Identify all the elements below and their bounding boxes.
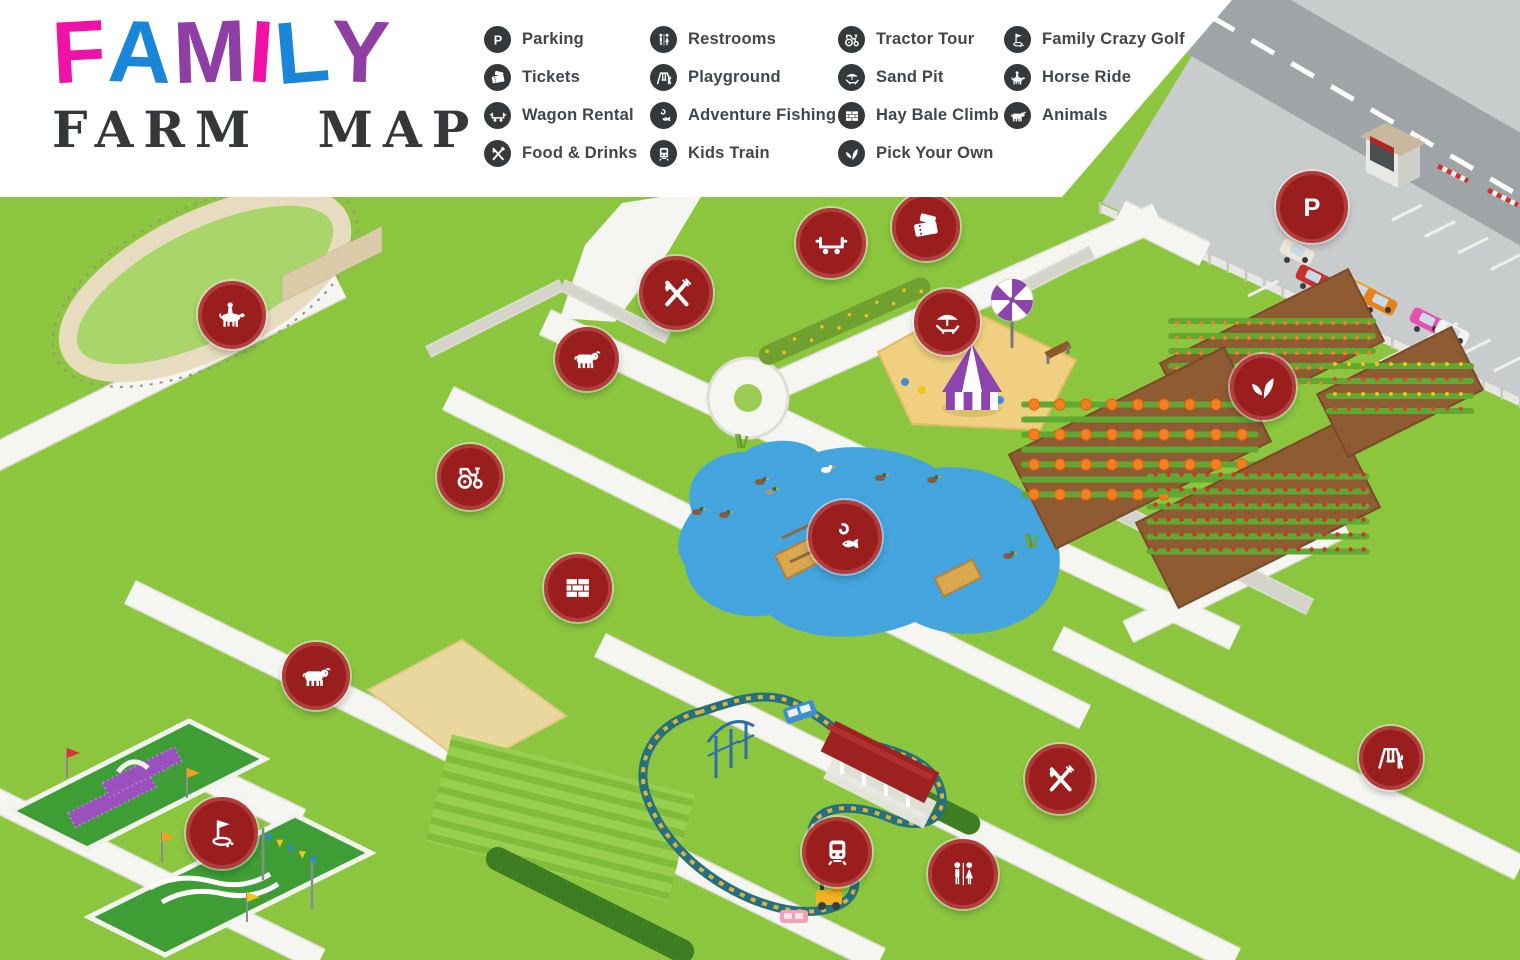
map-marker-adventure-fishing[interactable] bbox=[808, 500, 882, 574]
map-marker-restrooms[interactable] bbox=[928, 839, 998, 909]
legend-item-hay-bale-climb: Hay Bale Climb bbox=[838, 102, 999, 129]
legend-item-adventure-fishing: Adventure Fishing bbox=[650, 102, 836, 129]
legend-item-label: Parking bbox=[522, 30, 584, 49]
title-letter: F bbox=[50, 5, 111, 100]
legend-item-label: Sand Pit bbox=[876, 68, 944, 87]
title-letter: A bbox=[106, 5, 175, 99]
map-marker-tickets[interactable] bbox=[892, 193, 960, 261]
horse-ride-icon bbox=[1004, 64, 1031, 91]
map-marker-sand-pit[interactable] bbox=[914, 289, 980, 355]
legend-item-label: Kids Train bbox=[688, 144, 770, 163]
legend-item-label: Adventure Fishing bbox=[688, 106, 836, 125]
pick-your-own-icon bbox=[838, 140, 865, 167]
legend-item-wagon-rental: Wagon Rental bbox=[484, 102, 637, 129]
tractor-tour-icon bbox=[838, 26, 865, 53]
svg-text:P: P bbox=[493, 32, 502, 47]
svg-text:P: P bbox=[1304, 194, 1321, 222]
food-drinks-icon bbox=[484, 140, 511, 167]
legend-item-label: Hay Bale Climb bbox=[876, 106, 999, 125]
legend-item-tickets: Tickets bbox=[484, 64, 637, 91]
restrooms-icon bbox=[650, 26, 677, 53]
legend-item-label: Pick Your Own bbox=[876, 144, 994, 163]
legend-item-playground: Playground bbox=[650, 64, 836, 91]
map-marker-food-drinks-barn[interactable] bbox=[639, 256, 713, 330]
legend-item-label: Wagon Rental bbox=[522, 106, 634, 125]
family-farm-map: P FAMILY FARM MAP PParkingTicketsWagon R… bbox=[0, 0, 1520, 960]
legend-item-tractor-tour: Tractor Tour bbox=[838, 26, 999, 53]
legend-item-label: Restrooms bbox=[688, 30, 776, 49]
playground-icon bbox=[650, 64, 677, 91]
page-title: FAMILY FARM MAP bbox=[52, 6, 452, 159]
kids-train-icon bbox=[650, 140, 677, 167]
parking-icon: P bbox=[484, 26, 511, 53]
legend-item-label: Tickets bbox=[522, 68, 580, 87]
title-family: FAMILY bbox=[52, 6, 452, 98]
legend-item-kids-train: Kids Train bbox=[650, 140, 836, 167]
map-marker-animals-barn[interactable] bbox=[555, 327, 619, 391]
legend-item-label: Animals bbox=[1042, 106, 1108, 125]
adventure-fishing-icon bbox=[650, 102, 677, 129]
animals-icon bbox=[1004, 102, 1031, 129]
legend-item-restrooms: Restrooms bbox=[650, 26, 836, 53]
title-letter: M bbox=[172, 5, 250, 100]
map-marker-tractor-tour[interactable] bbox=[437, 444, 503, 510]
legend-item-label: Playground bbox=[688, 68, 781, 87]
legend-item-label: Food & Drinks bbox=[522, 144, 637, 163]
legend-item-pick-your-own: Pick Your Own bbox=[838, 140, 999, 167]
map-marker-playground[interactable] bbox=[1359, 726, 1423, 790]
family-crazy-golf-icon bbox=[1004, 26, 1031, 53]
map-marker-family-crazy-golf[interactable] bbox=[186, 797, 258, 869]
title-letter: L bbox=[271, 4, 335, 101]
legend-item-label: Horse Ride bbox=[1042, 68, 1131, 87]
legend-item-food-drinks: Food & Drinks bbox=[484, 140, 637, 167]
legend-column: RestroomsPlaygroundAdventure FishingKids… bbox=[650, 26, 836, 167]
map-marker-horse-ride[interactable] bbox=[198, 281, 266, 349]
legend-item-sand-pit: Sand Pit bbox=[838, 64, 999, 91]
legend-item-family-crazy-golf: Family Crazy Golf bbox=[1004, 26, 1185, 53]
title-subtitle: FARM MAP bbox=[52, 100, 452, 159]
map-marker-wagon-rental[interactable] bbox=[796, 208, 866, 278]
map-marker-kids-train[interactable] bbox=[802, 817, 872, 887]
map-marker-animals-farmyard[interactable] bbox=[282, 642, 350, 710]
legend-column: Tractor TourSand PitHay Bale ClimbPick Y… bbox=[838, 26, 999, 167]
title-letter: Y bbox=[329, 5, 393, 99]
map-marker-food-drinks-stalls[interactable] bbox=[1025, 744, 1095, 814]
hay-bale-climb-icon bbox=[838, 102, 865, 129]
map-marker-parking[interactable]: P bbox=[1276, 171, 1348, 243]
legend-item-parking: PParking bbox=[484, 26, 637, 53]
legend-item-label: Tractor Tour bbox=[876, 30, 974, 49]
tickets-icon bbox=[484, 64, 511, 91]
map-marker-hay-bale-climb[interactable] bbox=[544, 554, 612, 622]
wagon-rental-icon bbox=[484, 102, 511, 129]
legend-item-label: Family Crazy Golf bbox=[1042, 30, 1185, 49]
map-marker-pick-your-own[interactable] bbox=[1230, 354, 1296, 420]
legend-column: PParkingTicketsWagon RentalFood & Drinks bbox=[484, 26, 637, 167]
sand-pit-icon bbox=[838, 64, 865, 91]
